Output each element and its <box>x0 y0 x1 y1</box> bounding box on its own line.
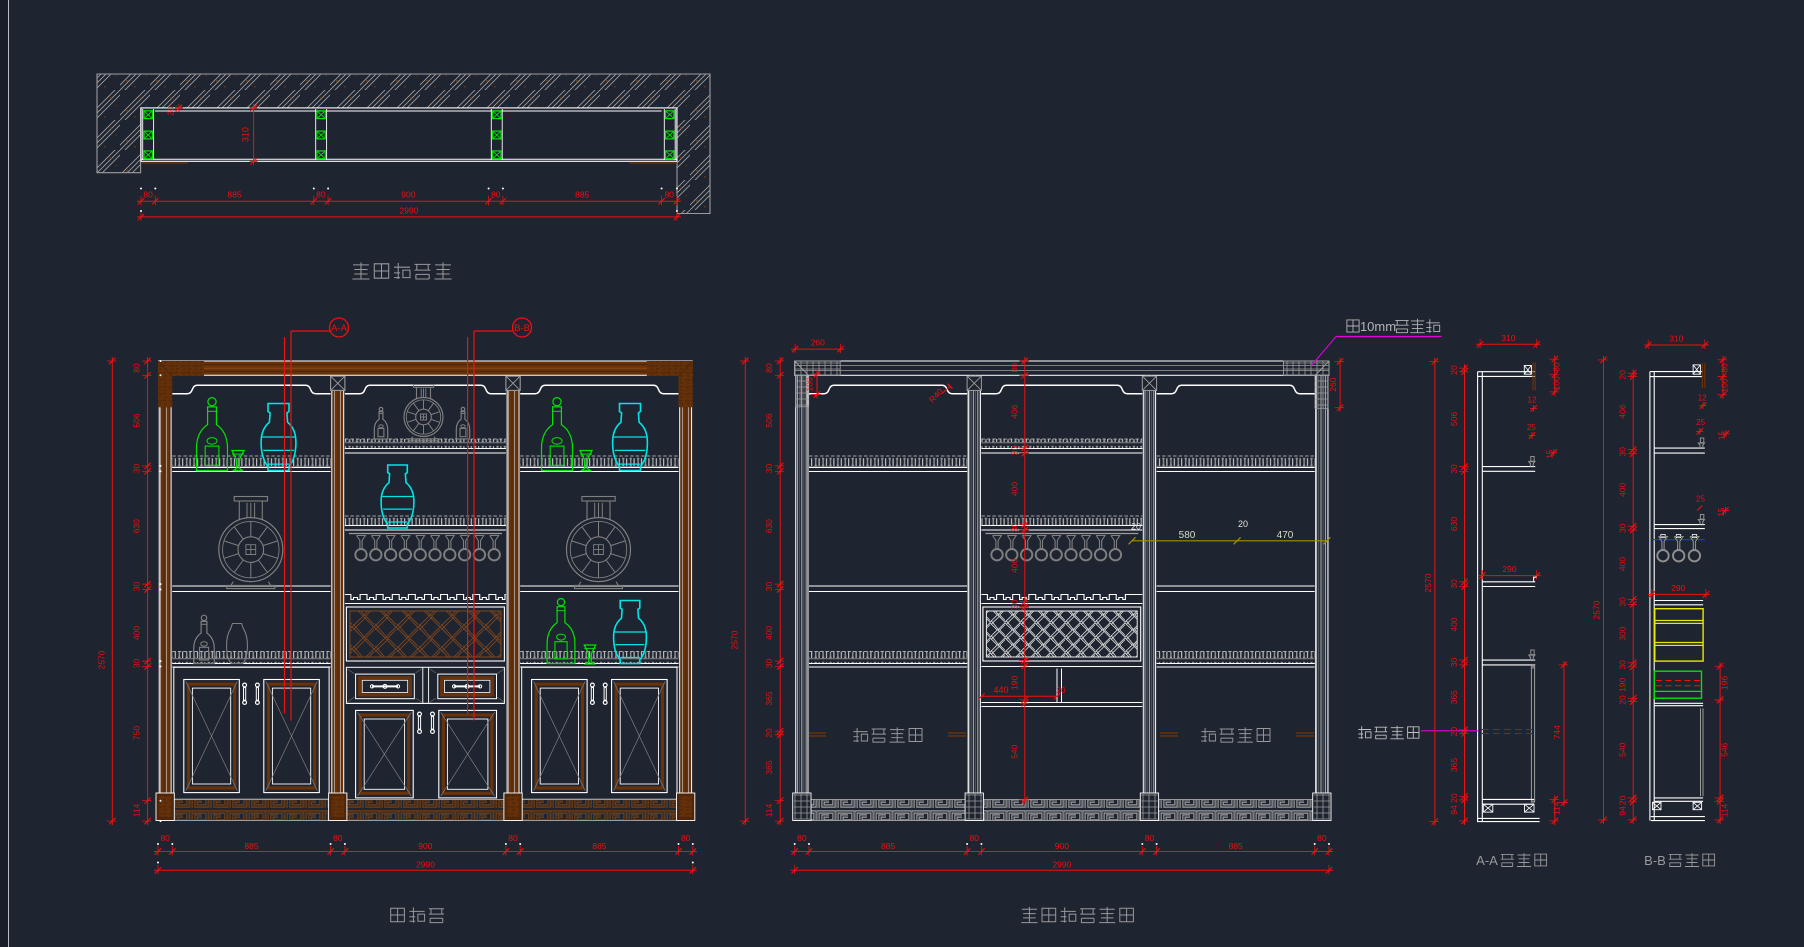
svg-text:12: 12 <box>1528 395 1537 404</box>
svg-text:10mm: 10mm <box>1360 319 1396 334</box>
svg-text:506: 506 <box>1449 412 1459 426</box>
svg-text:12: 12 <box>1698 394 1707 403</box>
svg-text:20: 20 <box>1131 522 1141 532</box>
svg-text:885: 885 <box>244 841 258 851</box>
svg-text:114: 114 <box>132 803 142 817</box>
svg-text:365: 365 <box>1449 690 1459 704</box>
svg-text:80: 80 <box>1009 363 1019 373</box>
svg-text:400: 400 <box>132 626 142 640</box>
svg-text:114: 114 <box>1551 801 1561 815</box>
svg-text:100: 100 <box>1720 378 1730 392</box>
svg-text:260: 260 <box>811 338 825 348</box>
svg-text:30: 30 <box>1009 522 1019 532</box>
svg-text:2570: 2570 <box>96 650 106 669</box>
svg-text:100: 100 <box>1551 376 1561 390</box>
svg-text:470: 470 <box>1277 530 1294 541</box>
svg-text:30: 30 <box>132 582 142 592</box>
svg-text:400: 400 <box>1009 482 1019 496</box>
svg-text:506: 506 <box>132 413 142 427</box>
svg-text:80: 80 <box>143 190 153 200</box>
svg-text:400: 400 <box>1009 558 1019 572</box>
svg-text:15: 15 <box>1718 431 1727 440</box>
svg-text:400: 400 <box>764 626 774 640</box>
svg-text:25: 25 <box>1696 494 1705 503</box>
svg-text:30: 30 <box>1449 658 1459 668</box>
svg-text:365: 365 <box>1449 758 1459 772</box>
svg-text:885: 885 <box>227 190 241 200</box>
svg-text:80: 80 <box>1720 363 1730 373</box>
svg-text:406: 406 <box>1009 404 1019 418</box>
svg-text:540: 540 <box>1009 744 1019 758</box>
svg-text:190: 190 <box>1009 676 1019 690</box>
svg-text:20: 20 <box>1618 795 1628 805</box>
svg-text:114: 114 <box>764 803 774 817</box>
svg-text:25: 25 <box>1696 418 1705 427</box>
svg-text:80: 80 <box>132 363 142 373</box>
svg-text:2570: 2570 <box>1423 573 1433 592</box>
svg-text:80: 80 <box>1317 833 1327 843</box>
svg-text:406: 406 <box>1618 404 1628 418</box>
svg-text:310: 310 <box>1669 333 1683 343</box>
svg-text:400: 400 <box>1618 483 1628 497</box>
svg-text:100: 100 <box>805 377 815 391</box>
svg-text:80: 80 <box>1145 833 1155 843</box>
svg-text:94: 94 <box>1449 805 1459 815</box>
svg-text:440: 440 <box>993 685 1008 695</box>
svg-text:25: 25 <box>1527 423 1536 432</box>
svg-text:30: 30 <box>1009 599 1019 609</box>
svg-text:80: 80 <box>1551 362 1561 372</box>
svg-text:310: 310 <box>241 127 251 142</box>
svg-text:80: 80 <box>160 833 170 843</box>
svg-text:114: 114 <box>1720 803 1730 817</box>
svg-text:506: 506 <box>764 413 774 427</box>
svg-text:20: 20 <box>1618 370 1628 380</box>
svg-text:80: 80 <box>508 833 518 843</box>
svg-text:30: 30 <box>1618 447 1628 457</box>
svg-text:885: 885 <box>1229 841 1243 851</box>
svg-text:400: 400 <box>1449 617 1459 631</box>
svg-text:80: 80 <box>665 190 675 200</box>
svg-text:744: 744 <box>1552 725 1562 739</box>
svg-text:365: 365 <box>764 760 774 774</box>
svg-text:30: 30 <box>1618 597 1628 607</box>
svg-text:260: 260 <box>1328 377 1338 391</box>
svg-text:80: 80 <box>316 190 326 200</box>
svg-text:80: 80 <box>764 363 774 373</box>
svg-text:20: 20 <box>1449 793 1459 803</box>
svg-text:630: 630 <box>1449 517 1459 531</box>
svg-text:310: 310 <box>1501 333 1515 343</box>
svg-text:30: 30 <box>764 582 774 592</box>
svg-text:885: 885 <box>575 190 589 200</box>
svg-text:20: 20 <box>1238 519 1248 529</box>
svg-text:20: 20 <box>167 106 176 115</box>
svg-text:885: 885 <box>881 841 895 851</box>
svg-text:2990: 2990 <box>400 205 419 215</box>
svg-text:300: 300 <box>1618 626 1628 640</box>
svg-text:30: 30 <box>1449 579 1459 589</box>
svg-text:2570: 2570 <box>1592 600 1602 619</box>
svg-text:580: 580 <box>1179 530 1196 541</box>
svg-text:630: 630 <box>764 519 774 533</box>
svg-text:30: 30 <box>1009 446 1019 456</box>
svg-text:546: 546 <box>1720 742 1730 756</box>
svg-text:30: 30 <box>132 659 142 669</box>
svg-text:885: 885 <box>592 841 606 851</box>
svg-text:2990: 2990 <box>1052 860 1071 870</box>
svg-text:190: 190 <box>1618 678 1628 692</box>
svg-text:900: 900 <box>418 841 432 851</box>
svg-text:80: 80 <box>797 833 807 843</box>
svg-text:B-B: B-B <box>1644 853 1666 868</box>
svg-text:80: 80 <box>681 833 691 843</box>
svg-text:30: 30 <box>132 464 142 474</box>
svg-text:365: 365 <box>764 691 774 705</box>
svg-text:20: 20 <box>1449 727 1459 737</box>
svg-text:30: 30 <box>1618 660 1628 670</box>
svg-text:900: 900 <box>401 190 415 200</box>
svg-text:900: 900 <box>1055 841 1069 851</box>
svg-text:80: 80 <box>333 833 343 843</box>
svg-text:80: 80 <box>491 190 501 200</box>
svg-text:540: 540 <box>1618 742 1628 756</box>
svg-text:2990: 2990 <box>416 860 435 870</box>
svg-text:630: 630 <box>132 519 142 533</box>
svg-text:750: 750 <box>132 726 142 740</box>
svg-text:400: 400 <box>1618 557 1628 571</box>
svg-text:20: 20 <box>1618 695 1628 705</box>
svg-text:30: 30 <box>764 659 774 669</box>
svg-text:30: 30 <box>764 464 774 474</box>
svg-text:30: 30 <box>1449 464 1459 474</box>
svg-text:A-A: A-A <box>331 323 348 334</box>
svg-text:2570: 2570 <box>729 630 739 649</box>
svg-text:80: 80 <box>970 833 980 843</box>
svg-text:30: 30 <box>1618 523 1628 533</box>
svg-text:20: 20 <box>1057 686 1066 695</box>
svg-text:196: 196 <box>1720 676 1730 690</box>
svg-text:20: 20 <box>1449 365 1459 375</box>
svg-text:94: 94 <box>1618 806 1628 816</box>
svg-text:20: 20 <box>764 728 774 738</box>
svg-text:290: 290 <box>1502 564 1516 574</box>
svg-text:B-B: B-B <box>514 323 530 334</box>
svg-text:290: 290 <box>1671 583 1685 593</box>
svg-text:A-A: A-A <box>1476 853 1498 868</box>
